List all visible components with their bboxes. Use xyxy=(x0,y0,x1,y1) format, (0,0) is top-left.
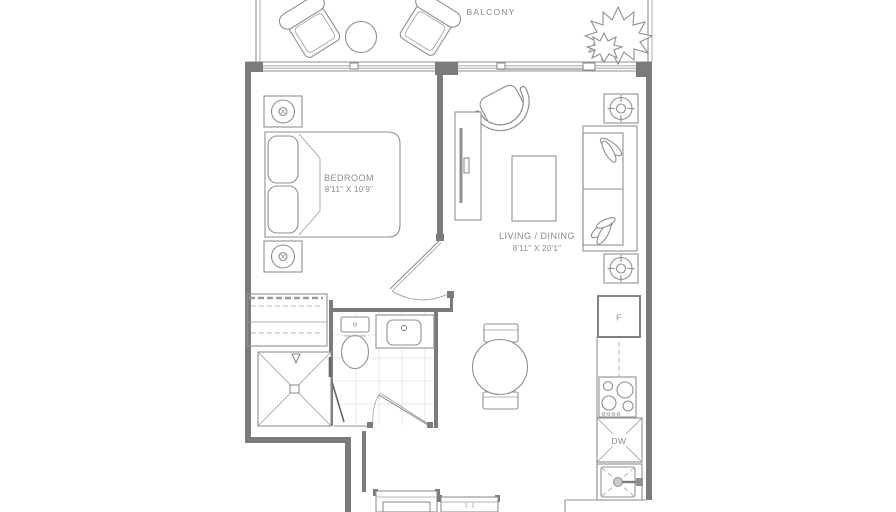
wall-bottom-left xyxy=(245,437,351,443)
balcony-label: BALCONY xyxy=(466,7,515,17)
entry-wall xyxy=(362,431,366,492)
bedroom-dimensions: 8'11" X 10'9" xyxy=(325,185,374,194)
fridge: F xyxy=(598,296,640,337)
bedroom-door xyxy=(390,241,448,300)
nightstand-top xyxy=(264,96,302,127)
wall-left xyxy=(245,70,251,443)
window-mullion xyxy=(350,63,358,69)
shower-door xyxy=(332,382,344,422)
drain xyxy=(614,478,623,487)
floor-plan-drawing: BALCONY xyxy=(0,0,896,512)
bedroom-closet xyxy=(247,294,327,346)
dining-set xyxy=(473,324,528,409)
coffee-table xyxy=(512,156,556,221)
bedroom-door-hinge-jamb xyxy=(436,234,444,241)
dishwasher: DW xyxy=(597,418,642,462)
side-table-bottom xyxy=(604,254,638,283)
bathroom-wall-right xyxy=(434,310,438,428)
sofa xyxy=(583,126,637,251)
armchair xyxy=(472,80,535,137)
nightstand-bottom xyxy=(264,241,302,272)
toilet xyxy=(341,317,369,369)
bedroom-door-swing-arc xyxy=(392,291,448,300)
bedroom-door-leaf2 xyxy=(392,243,441,291)
bathroom-wall-connector xyxy=(450,296,453,310)
entry-cabinet xyxy=(437,495,500,512)
bathroom-door-leaf xyxy=(379,395,428,425)
bathroom-door-leaf2 xyxy=(380,393,427,423)
dishwasher-label: DW xyxy=(611,436,626,446)
shower xyxy=(258,352,344,426)
balcony-table-icon xyxy=(346,22,377,53)
window-mullion2 xyxy=(497,63,505,69)
shower-drain xyxy=(290,385,299,393)
living-dining-label: LIVING / DINING xyxy=(499,231,575,241)
wall-lower-left xyxy=(345,441,351,512)
faucet-base xyxy=(636,478,643,486)
bathroom-door-jamb-left xyxy=(367,422,373,428)
wall-bedroom-divider xyxy=(437,73,443,239)
entry-area xyxy=(362,431,500,512)
side-table-top xyxy=(604,94,638,123)
plant-icon xyxy=(585,7,652,64)
dining-table xyxy=(473,340,528,395)
balcony-chair-left-icon xyxy=(276,0,345,62)
fridge-label: F xyxy=(616,313,622,323)
bathroom-door xyxy=(373,393,428,425)
kitchen-area: F DW xyxy=(597,296,643,500)
bathroom-area xyxy=(258,296,453,428)
tv-console xyxy=(455,112,481,220)
slider-jamb xyxy=(583,63,595,70)
bedroom-door-leaf xyxy=(390,241,439,289)
wall-right xyxy=(646,70,652,500)
balcony-chair-right-icon xyxy=(394,0,463,60)
living-dining-area: LIVING / DINING 8'11" X 20'1" xyxy=(455,80,638,409)
bathroom-door-swing-arc xyxy=(373,394,379,425)
kitchen-sink xyxy=(597,464,643,500)
entry-closet xyxy=(373,489,440,512)
vanity-sink xyxy=(376,315,434,348)
balcony-area: BALCONY xyxy=(256,0,652,64)
living-dining-dimensions: 8'11" X 20'1" xyxy=(513,244,562,253)
cooktop xyxy=(599,377,636,417)
floor-plan-page: BALCONY xyxy=(0,0,896,512)
bedroom-label: BEDROOM xyxy=(324,173,374,183)
